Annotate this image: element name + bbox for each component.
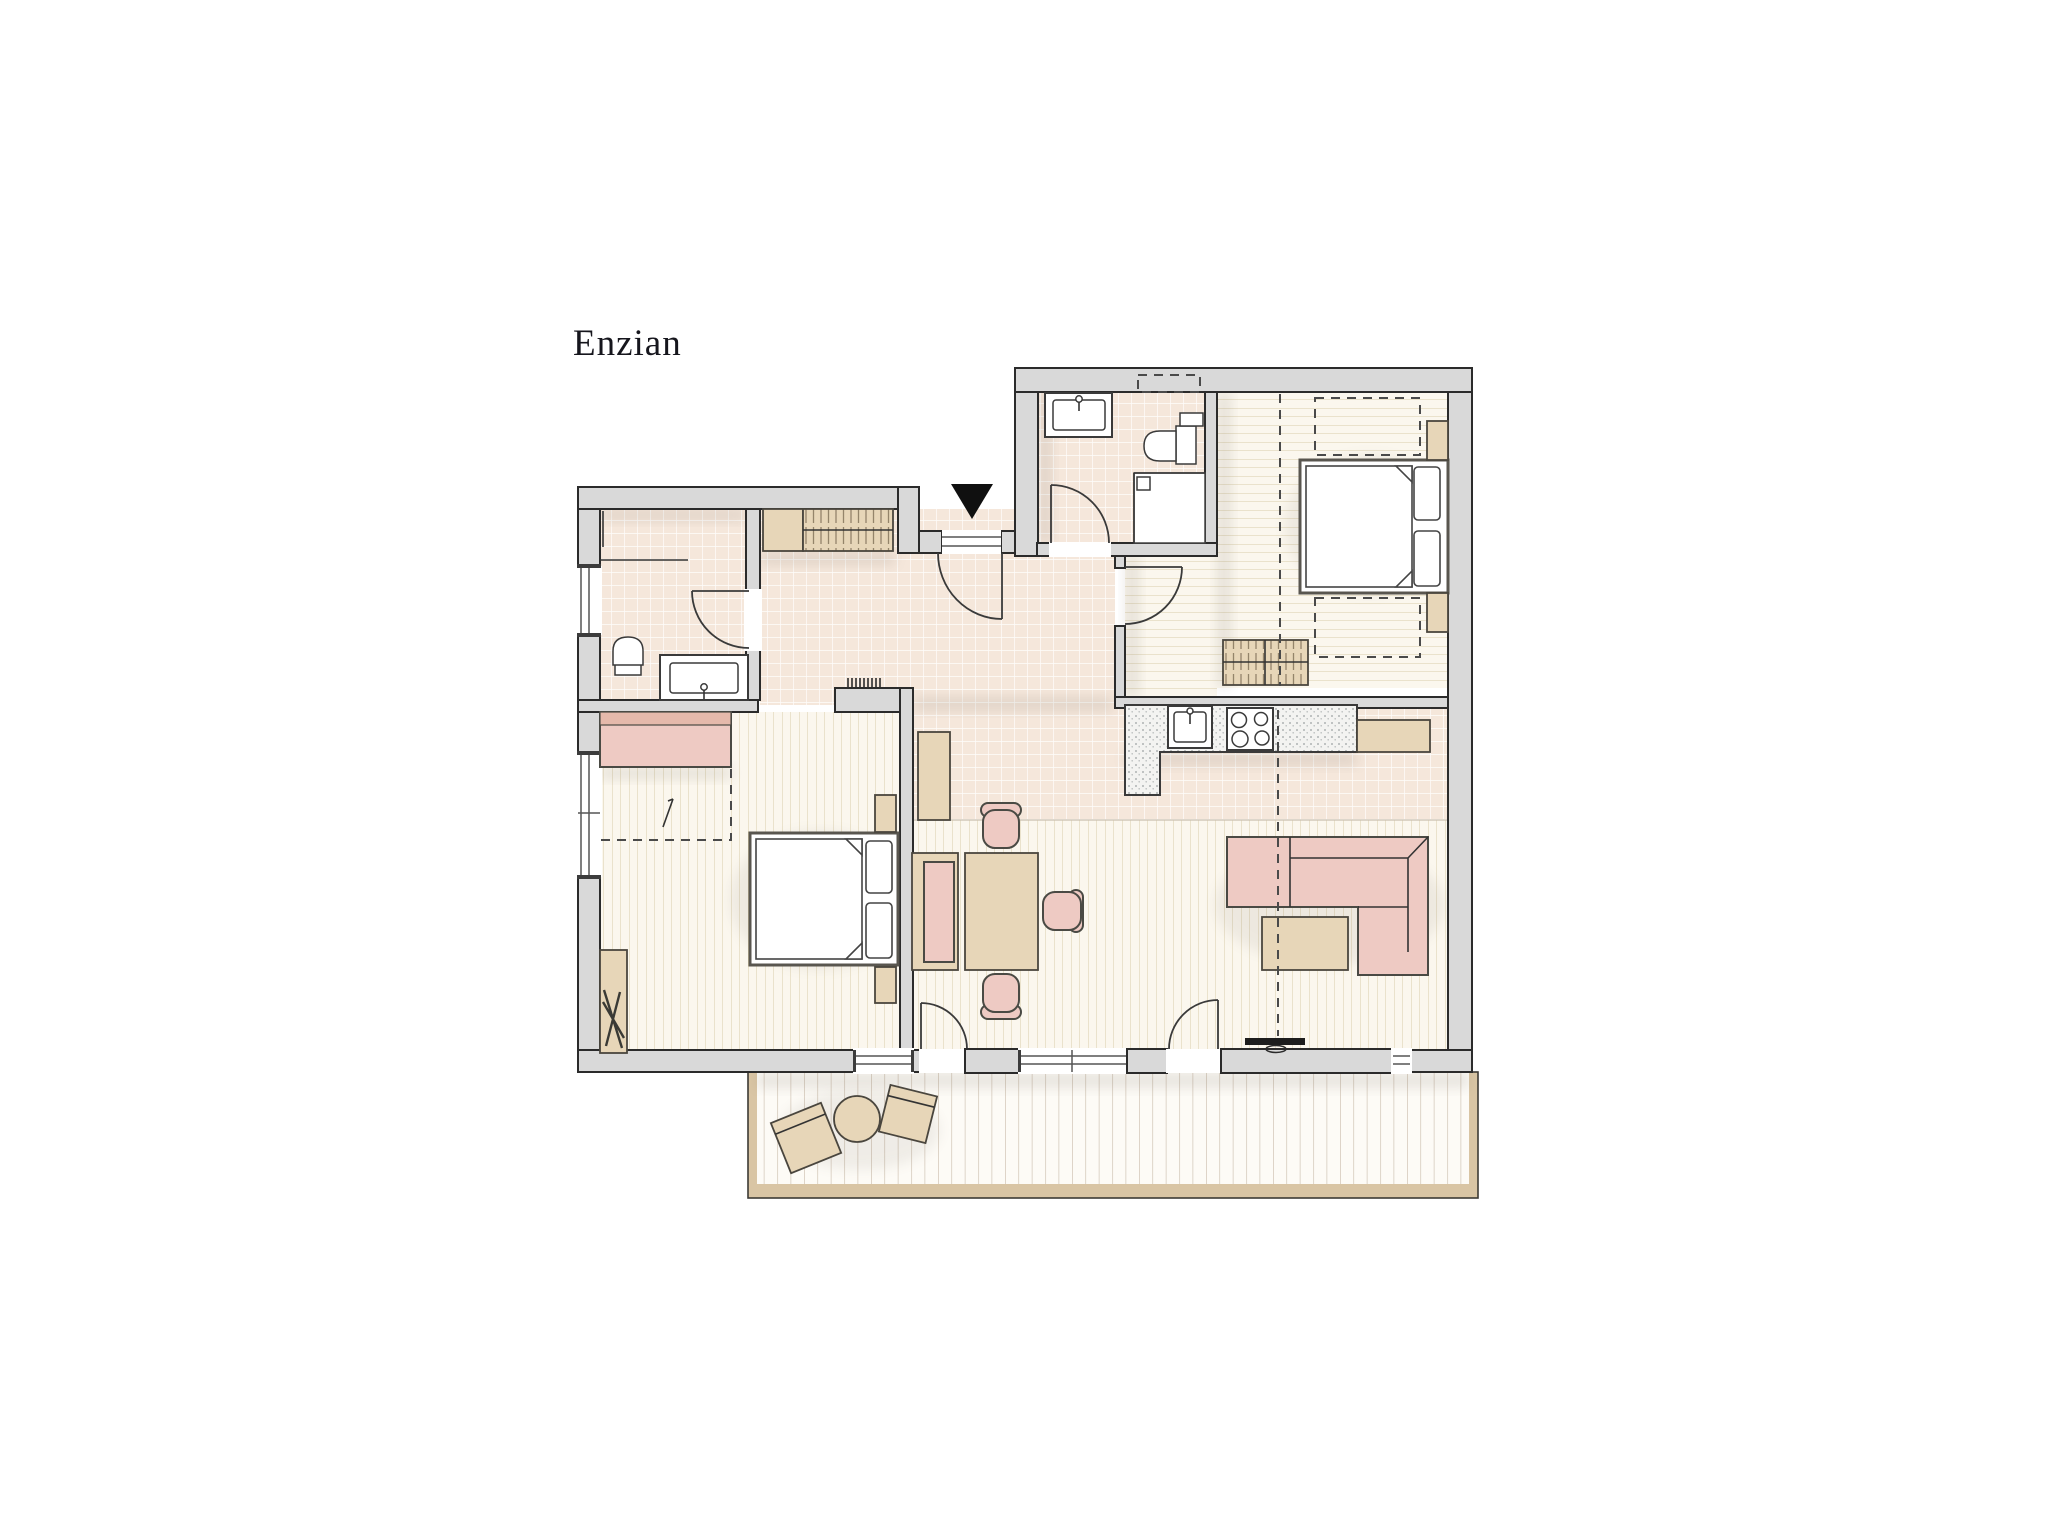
dining-table xyxy=(965,853,1038,970)
lounge-chair-right xyxy=(879,1085,937,1143)
wall-right-outer xyxy=(1448,392,1472,1072)
wall-block2-left xyxy=(1015,368,1038,556)
wall-bathroom1-right-upper xyxy=(746,509,760,590)
toilet xyxy=(613,637,643,675)
double-bed xyxy=(1300,460,1448,593)
window-bedroom-1-balcony xyxy=(853,1048,914,1074)
dining-chair-top xyxy=(981,803,1021,848)
wall-bedroom1-living xyxy=(900,688,913,1072)
window-bedroom-1 xyxy=(576,751,602,879)
hall-radiator xyxy=(848,678,880,688)
coffee-table xyxy=(1262,917,1348,970)
page: Enzian xyxy=(0,0,2048,1538)
window-living-1 xyxy=(1018,1048,1129,1074)
dining-chair-right xyxy=(1043,890,1083,932)
toilet xyxy=(1144,426,1196,464)
shower xyxy=(1134,473,1205,543)
washbasin-vanity xyxy=(660,655,748,700)
wall-bathroom2-right xyxy=(1205,392,1217,543)
dining-bench xyxy=(912,853,958,970)
washbasin-vanity xyxy=(1045,393,1112,437)
kitchen-sink xyxy=(1168,706,1212,748)
window-living-2 xyxy=(1391,1048,1412,1074)
tall-cabinet xyxy=(918,732,950,820)
wardrobe xyxy=(600,712,731,767)
wall-entry-side xyxy=(898,487,919,553)
wall-dressing-stub xyxy=(1115,556,1125,568)
dresser xyxy=(1223,640,1308,685)
window-bathroom-1 xyxy=(576,564,602,637)
round-table xyxy=(834,1096,880,1142)
wall-entry-left xyxy=(919,531,942,553)
nightstand-top xyxy=(875,795,896,832)
window-parapet xyxy=(1221,1049,1393,1073)
window-sill-1 xyxy=(965,1049,1020,1073)
floor-plan xyxy=(0,0,2048,1538)
window-sill-2 xyxy=(1127,1049,1167,1073)
nightstand-top xyxy=(1427,421,1448,460)
dining-chair-bottom xyxy=(981,974,1021,1019)
nightstand-bottom xyxy=(1427,593,1448,632)
entry-threshold xyxy=(942,530,1001,554)
wall-top-outer xyxy=(1015,368,1472,392)
wall-dressing-lower xyxy=(1115,626,1125,700)
double-bed xyxy=(750,833,898,965)
shelf xyxy=(1180,413,1203,426)
hallway-floor-2 xyxy=(1015,556,1115,705)
wall-top-left-block xyxy=(578,487,900,509)
nightstand-bottom xyxy=(875,967,896,1003)
hall-cabinet xyxy=(763,509,803,551)
wall-bathroom1-bottom xyxy=(578,700,758,712)
kitchen-cabinet xyxy=(1357,720,1430,752)
stove xyxy=(1227,708,1273,750)
